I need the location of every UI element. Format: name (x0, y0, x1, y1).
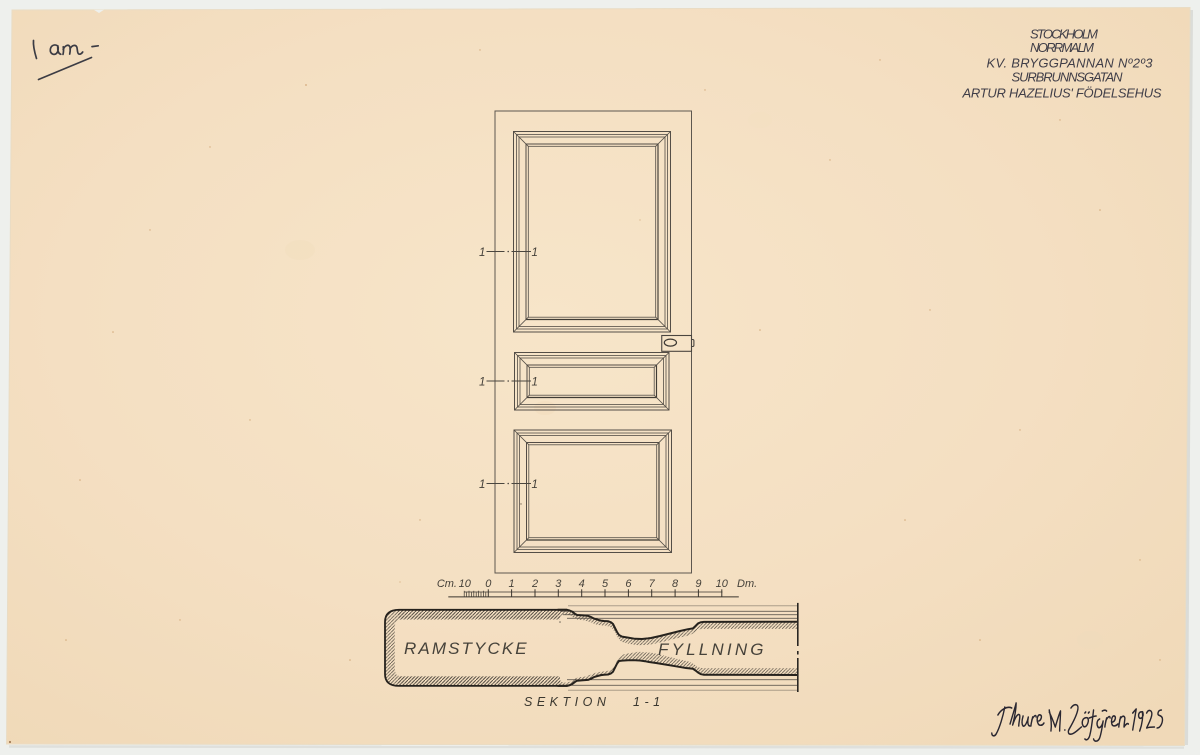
svg-text:SEKTION: SEKTION (524, 695, 610, 709)
svg-text:7: 7 (649, 578, 656, 590)
svg-text:Cm.: Cm. (437, 578, 457, 590)
svg-text:10: 10 (459, 578, 472, 590)
svg-text:1: 1 (479, 247, 485, 259)
svg-text:1: 1 (532, 376, 538, 388)
svg-text:1: 1 (479, 479, 485, 491)
svg-text:1: 1 (479, 376, 485, 388)
svg-text:2: 2 (531, 578, 538, 590)
svg-text:Dm.: Dm. (737, 578, 757, 590)
svg-text:6: 6 (625, 578, 632, 590)
svg-text:0: 0 (485, 578, 492, 590)
svg-text:FYLLNING: FYLLNING (658, 640, 767, 659)
svg-text:8: 8 (672, 578, 679, 590)
svg-text:3: 3 (555, 578, 562, 590)
svg-text:5: 5 (602, 578, 609, 590)
svg-text:KV. BRYGGPANNAN Nº2º3: KV. BRYGGPANNAN Nº2º3 (987, 56, 1154, 71)
svg-text:1: 1 (509, 578, 515, 590)
svg-text:1-1: 1-1 (633, 695, 665, 709)
svg-text:SURBRUNNSGATAN: SURBRUNNSGATAN (1012, 70, 1124, 85)
svg-text:4: 4 (579, 578, 585, 590)
svg-text:NORRMALM: NORRMALM (1030, 40, 1094, 55)
svg-text:1: 1 (532, 479, 538, 491)
svg-text:1: 1 (532, 247, 538, 259)
svg-text:RAMSTYCKE: RAMSTYCKE (404, 639, 529, 658)
svg-text:ARTUR HAZELIUS' FÖDELSEHUS: ARTUR HAZELIUS' FÖDELSEHUS (962, 86, 1162, 101)
svg-text:10: 10 (716, 578, 729, 590)
svg-text:9: 9 (695, 578, 701, 590)
